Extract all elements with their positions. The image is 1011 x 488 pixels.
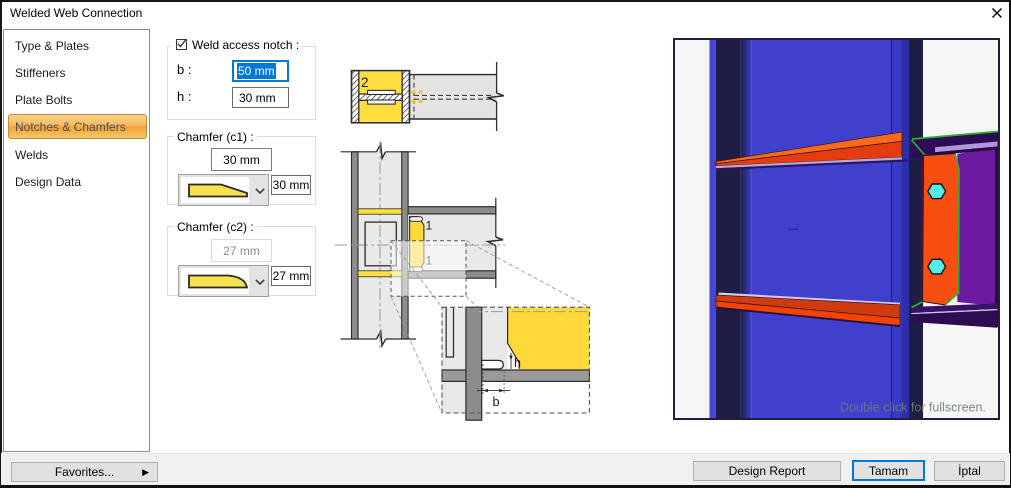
svg-text:Double click for fullscreen.: Double click for fullscreen.: [840, 401, 986, 415]
svg-text:1: 1: [426, 219, 433, 233]
svg-text:2: 2: [361, 75, 369, 90]
svg-text:b: b: [493, 395, 500, 409]
svg-text:h: h: [514, 356, 521, 370]
